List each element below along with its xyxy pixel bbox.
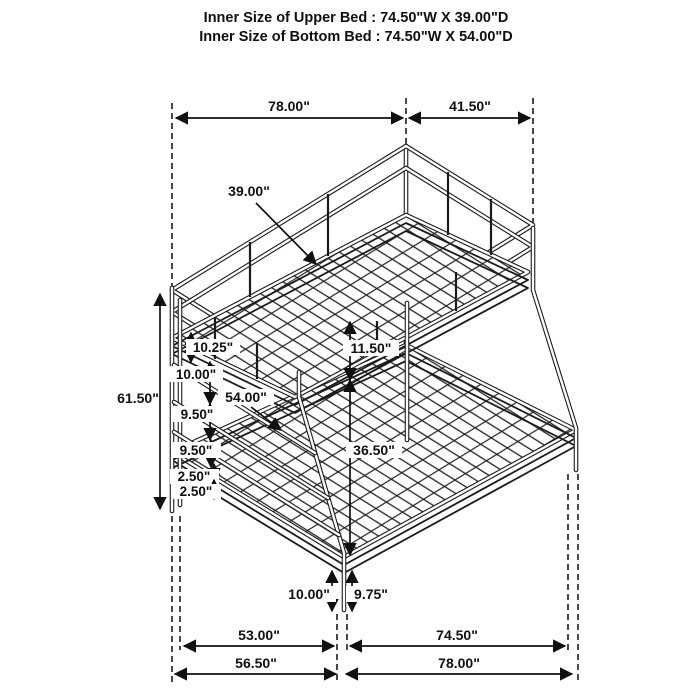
dim-label-top-width: 78.00" <box>268 98 310 114</box>
dim-label-frame-gap-a: 2.50" <box>178 469 211 484</box>
dim-label-ladder-gap-top: 10.00" <box>176 367 216 382</box>
diagram-header: Inner Size of Upper Bed : 74.50"W X 39.0… <box>199 10 513 45</box>
dim-label-upper-bed-depth: 39.00" <box>228 183 270 199</box>
dim-label-top-depth: 41.50" <box>449 98 491 114</box>
dim-label-under-clearance: 36.50" <box>353 442 395 458</box>
bed-drawing <box>172 146 576 610</box>
dim-label-lower-bed-depth: 54.00" <box>225 389 267 405</box>
header-bottom-bed-size: Inner Size of Bottom Bed : 74.50"W X 54.… <box>199 29 513 45</box>
dim-front-leg-outer: 10.00" <box>282 571 336 611</box>
dim-label-base-outer-width: 78.00" <box>438 655 480 671</box>
dim-base-outer-depth: 56.50" <box>175 655 336 674</box>
dim-label-upper-frame-band: 10.25" <box>193 340 233 355</box>
dim-overall-height: 61.50" <box>117 294 160 509</box>
dimension-diagram: Inner Size of Upper Bed : 74.50"W X 39.0… <box>0 0 700 700</box>
dim-label-base-inner-depth: 53.00" <box>238 627 280 643</box>
dim-ladder-gap-top: 10.00" <box>169 362 223 404</box>
dim-top-width: 78.00" <box>176 98 403 118</box>
dim-base-inner-depth: 53.00" <box>184 627 334 646</box>
dim-base-inner-width: 74.50" <box>350 627 565 646</box>
dim-front-leg-inner: 9.75" <box>346 571 396 611</box>
dim-top-depth: 41.50" <box>409 98 530 118</box>
dim-label-base-outer-depth: 56.50" <box>235 655 277 671</box>
dim-label-front-leg-outer: 10.00" <box>288 586 330 602</box>
dim-label-overall-height: 61.50" <box>117 390 159 406</box>
dim-label-ladder-gap-mid: 9.50" <box>181 407 214 422</box>
bunk-bed-dimension-drawing: Inner Size of Upper Bed : 74.50"W X 39.0… <box>0 0 700 700</box>
lower-bunk-deck <box>172 345 576 573</box>
dim-label-ladder-gap-low: 9.50" <box>180 443 213 458</box>
dim-label-bunk-gap: 11.50" <box>351 340 392 356</box>
dim-label-front-leg-inner: 9.75" <box>354 586 388 602</box>
dim-label-frame-gap-b: 2.50" <box>180 484 213 499</box>
dim-base-outer-width: 78.00" <box>346 655 572 674</box>
header-upper-bed-size: Inner Size of Upper Bed : 74.50"W X 39.0… <box>204 10 509 26</box>
dim-label-base-inner-width: 74.50" <box>436 627 478 643</box>
